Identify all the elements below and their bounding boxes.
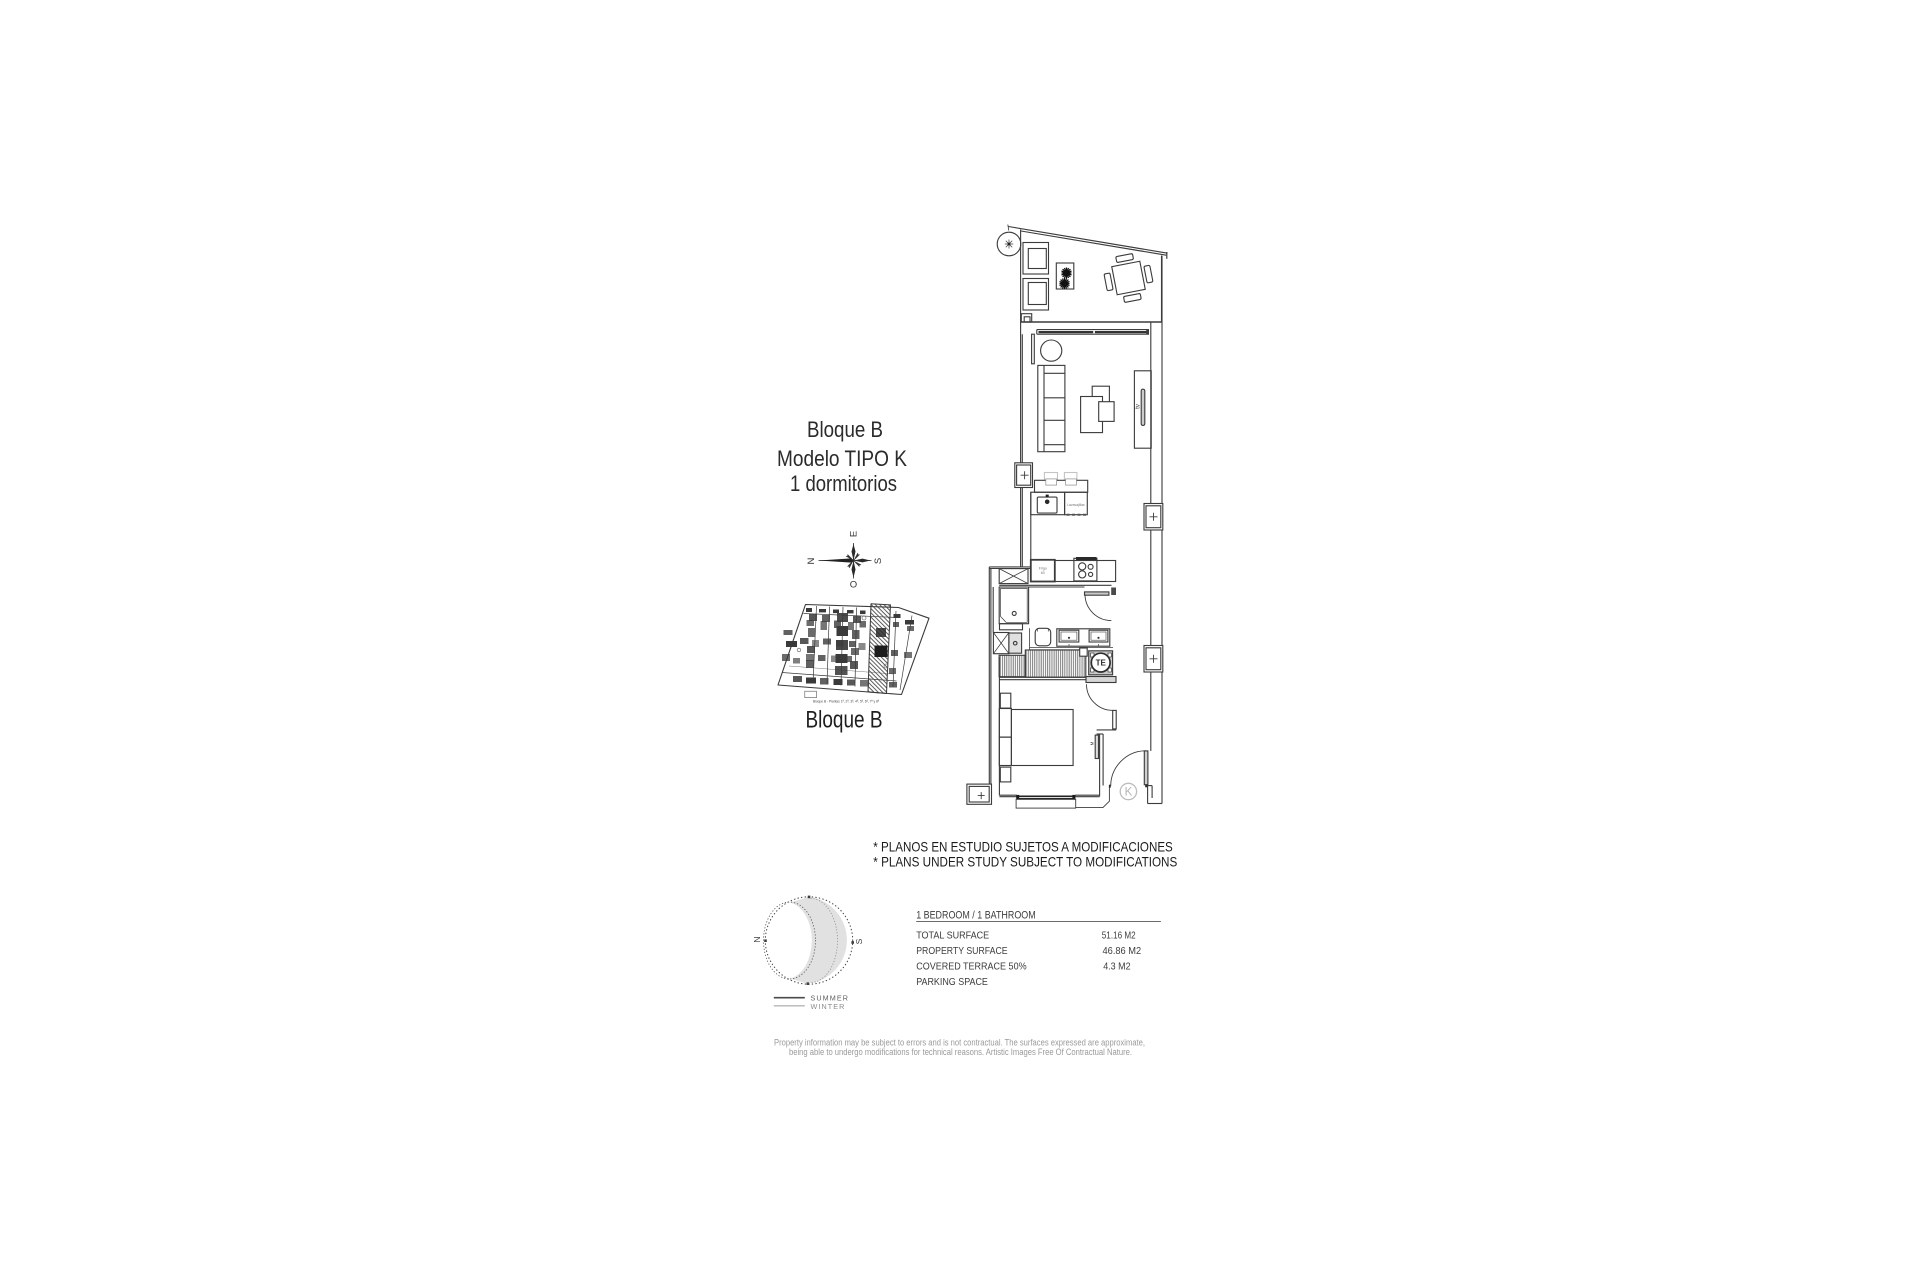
svg-text:Frigo: Frigo	[1039, 567, 1047, 571]
svg-text:60: 60	[1041, 571, 1045, 575]
svg-text:1 dormitorios: 1 dormitorios	[790, 471, 897, 496]
svg-text:K: K	[1125, 787, 1133, 799]
svg-text:COVERED TERRACE 50%: COVERED TERRACE 50%	[916, 962, 1026, 973]
svg-text:S: S	[873, 558, 884, 564]
svg-text:Bloque B - Plantas 1ª, 2ª, 3ª,: Bloque B - Plantas 1ª, 2ª, 3ª, 4ª, 5ª, 6…	[813, 700, 880, 704]
svg-text:4.3 M2: 4.3 M2	[1103, 962, 1131, 973]
svg-text:N: N	[806, 557, 817, 564]
svg-text:M: M	[1090, 741, 1095, 745]
svg-text:Bloque B: Bloque B	[806, 707, 883, 734]
svg-text:* PLANOS EN ESTUDIO SUJETOS A: * PLANOS EN ESTUDIO SUJETOS A MODIFICACI…	[873, 840, 1173, 855]
svg-text:tv: tv	[1136, 404, 1142, 409]
svg-text:S: S	[854, 938, 864, 944]
svg-text:Modelo TIPO K: Modelo TIPO K	[777, 446, 907, 471]
svg-text:PARKING SPACE: PARKING SPACE	[916, 977, 988, 988]
svg-text:Property information may be su: Property information may be subject to e…	[774, 1037, 1145, 1047]
svg-text:O: O	[850, 580, 857, 591]
svg-text:E: E	[849, 531, 860, 537]
svg-text:Bloque B: Bloque B	[807, 417, 883, 442]
svg-text:WINTER: WINTER	[811, 1002, 846, 1011]
svg-text:TOTAL SURFACE: TOTAL SURFACE	[916, 931, 989, 942]
svg-text:* PLANS UNDER STUDY SUBJECT TO: * PLANS UNDER STUDY SUBJECT TO MODIFICAT…	[873, 854, 1177, 869]
svg-text:46.86 M2: 46.86 M2	[1103, 946, 1142, 957]
svg-text:51.16 M2: 51.16 M2	[1102, 931, 1136, 942]
svg-text:TE: TE	[1096, 659, 1107, 668]
svg-text:1 BEDROOM / 1 BATHROOM: 1 BEDROOM / 1 BATHROOM	[916, 909, 1035, 921]
svg-text:being able to undergo modifica: being able to undergo modifications for …	[789, 1047, 1132, 1057]
svg-text:Lavavajillas: Lavavajillas	[1067, 503, 1085, 507]
svg-text:N: N	[752, 936, 762, 942]
svg-text:PROPERTY SURFACE: PROPERTY SURFACE	[916, 946, 1008, 957]
